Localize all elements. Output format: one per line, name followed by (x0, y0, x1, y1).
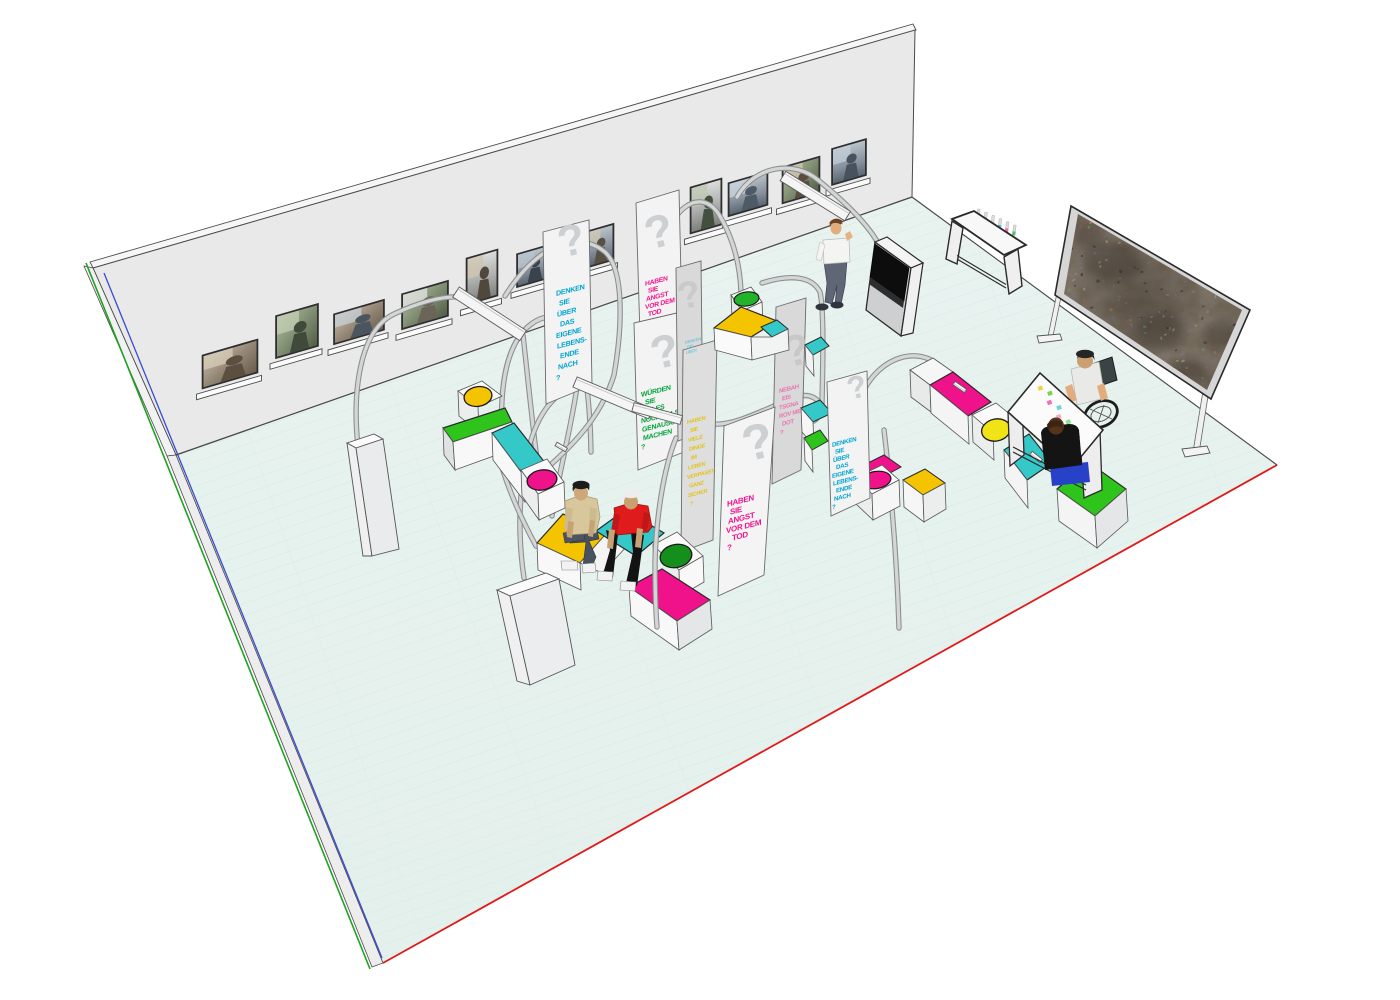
svg-text:?: ? (727, 543, 732, 553)
svg-text:?: ? (780, 429, 784, 437)
svg-text:?: ? (641, 443, 645, 452)
svg-text:?: ? (832, 503, 836, 511)
